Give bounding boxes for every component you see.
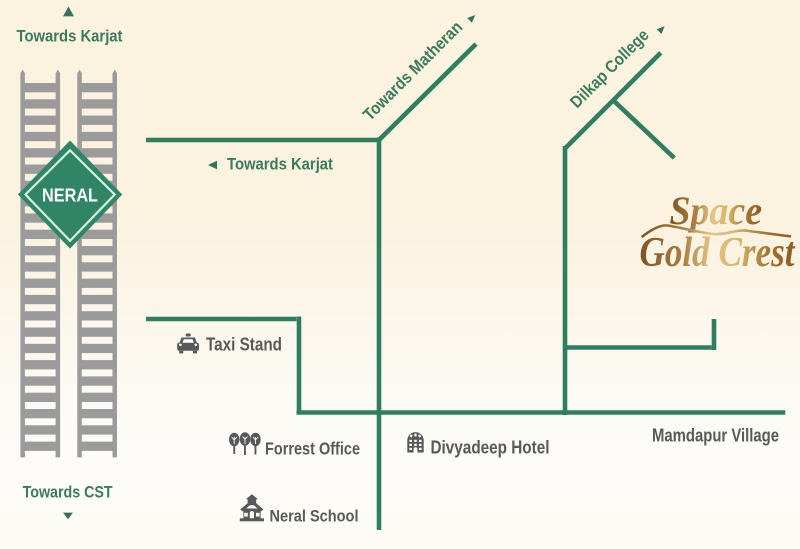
svg-text:Dilkap College: Dilkap College (566, 26, 652, 112)
svg-text:Space: Space (670, 188, 763, 233)
svg-text:Neral School: Neral School (270, 506, 359, 525)
svg-text:Forrest Office: Forrest Office (265, 438, 360, 458)
svg-text:Towards CST: Towards CST (23, 483, 113, 501)
svg-text:Towards Karjat: Towards Karjat (227, 155, 333, 174)
svg-text:Mamdapur Village: Mamdapur Village (652, 426, 779, 446)
svg-text:NERAL: NERAL (42, 184, 98, 205)
svg-text:Taxi Stand: Taxi Stand (206, 335, 282, 355)
svg-text:Divyadeep Hotel: Divyadeep Hotel (431, 438, 550, 458)
svg-text:Towards Karjat: Towards Karjat (17, 27, 123, 45)
svg-text:Gold Crest: Gold Crest (640, 230, 796, 276)
